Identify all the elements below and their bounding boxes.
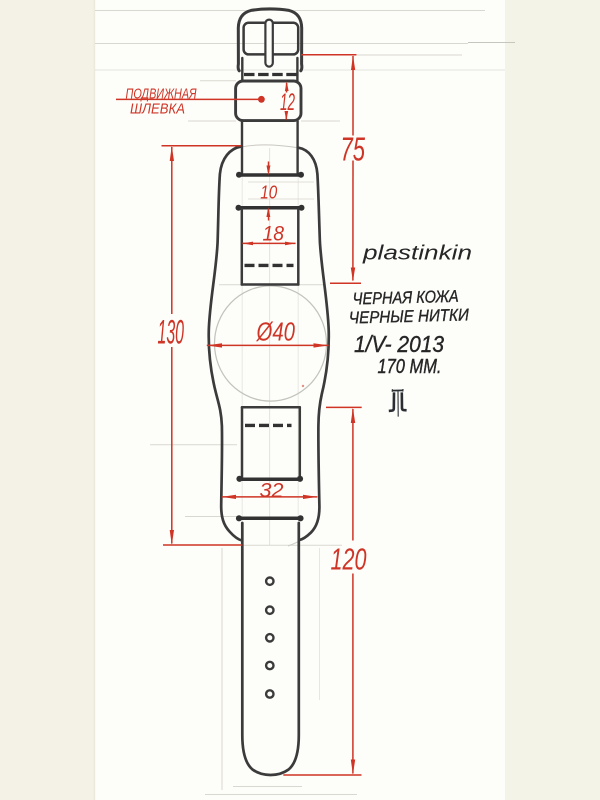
svg-text:ЧЕРНЫЕ НИТКИ: ЧЕРНЫЕ НИТКИ [349,305,470,327]
svg-text:130: 130 [158,314,185,352]
svg-text:Ø40: Ø40 [256,317,296,347]
svg-text:18: 18 [263,222,285,245]
svg-text:12: 12 [280,89,295,116]
svg-text:ПОДВИЖНАЯ: ПОДВИЖНАЯ [126,87,197,103]
svg-text:ШЛЕВКА: ШЛЕВКА [130,102,185,118]
svg-text:75: 75 [341,131,366,168]
svg-text:32: 32 [260,479,285,502]
svg-text:plastinkin: plastinkin [362,242,472,265]
svg-text:10: 10 [260,181,278,202]
svg-text:170 ММ.: 170 ММ. [378,356,442,378]
svg-text:120: 120 [331,542,367,577]
svg-text:1/V- 2013: 1/V- 2013 [354,331,444,357]
